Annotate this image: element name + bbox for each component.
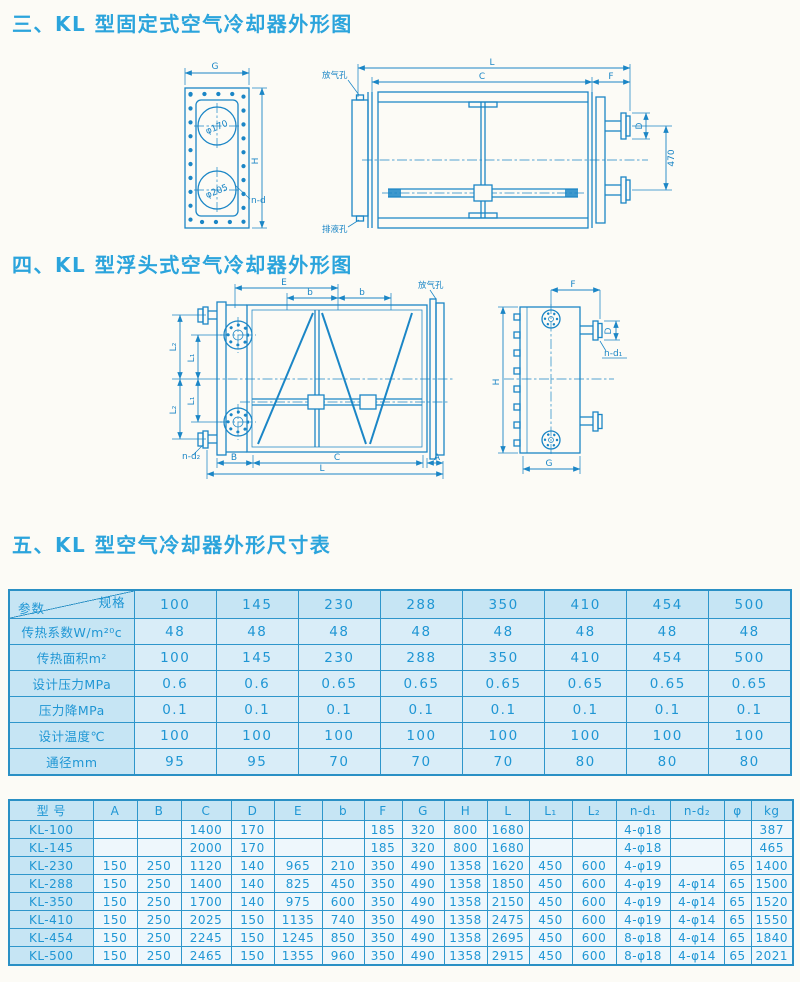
spec-column-header: 410 — [545, 590, 627, 619]
dimension-column-header: b — [322, 800, 364, 821]
dimension-value: 1358 — [444, 875, 487, 893]
floating-type-drawing: n-d₂ E b b 放气孔 L₂ L₁ L₁ — [0, 278, 800, 518]
dimension-value: 1400 — [181, 821, 231, 839]
dimension-value: 8-φ18 — [616, 929, 670, 947]
corner-spec-label: 规格 — [99, 592, 126, 611]
parameter-value: 288 — [380, 645, 462, 671]
dim-label-nd1: n-d₁ — [604, 349, 623, 359]
dimension-column-header: E — [274, 800, 322, 821]
dimension-value: 2021 — [751, 947, 793, 966]
dimension-value: 1135 — [274, 911, 322, 929]
section4-title: 四、KL 型浮头式空气冷却器外形图 — [12, 249, 353, 278]
parameter-row: 通径mm9595707070808080 — [9, 749, 791, 776]
dimension-column-header: kg — [751, 800, 793, 821]
dimension-value: 600 — [322, 893, 364, 911]
dimension-value: 150 — [93, 947, 137, 966]
dimension-value: 350 — [364, 929, 402, 947]
spec-column-header: 100 — [134, 590, 216, 619]
drain-nozzle — [357, 216, 364, 221]
parameter-value: 0.1 — [134, 697, 216, 723]
parameter-value: 95 — [216, 749, 298, 776]
dimension-value: 1245 — [274, 929, 322, 947]
model-row: KL-145200017018532080016804-φ18465 — [9, 839, 793, 857]
model-name: KL-500 — [9, 947, 93, 966]
dimension-value: 250 — [137, 857, 181, 875]
dimension-value: 4-φ14 — [670, 893, 724, 911]
tie-rod-thread-left — [388, 189, 401, 197]
parameter-value: 0.65 — [380, 671, 462, 697]
side-top-nozzle-flange — [593, 321, 598, 340]
parameter-value: 0.1 — [216, 697, 298, 723]
dimension-value: 450 — [529, 875, 572, 893]
dimension-value: 2245 — [181, 929, 231, 947]
parameter-value: 48 — [298, 619, 380, 645]
dimension-value: 1700 — [181, 893, 231, 911]
dimension-value: 210 — [322, 857, 364, 875]
parameter-value: 48 — [216, 619, 298, 645]
dimension-value: 1620 — [487, 857, 529, 875]
dimension-value: 4-φ19 — [616, 893, 670, 911]
parameter-label: 通径mm — [9, 749, 134, 776]
drain-label: 排液孔 — [322, 224, 348, 235]
parameter-value: 454 — [627, 645, 709, 671]
spec-column-header: 230 — [298, 590, 380, 619]
dimension-value — [529, 839, 572, 857]
corner-cell: 规格 参数 — [9, 590, 134, 619]
dim-label-f2: F — [570, 280, 575, 290]
parameter-value: 0.6 — [134, 671, 216, 697]
parameter-value: 0.1 — [545, 697, 627, 723]
parameter-value: 0.1 — [709, 697, 791, 723]
dimension-value: 2150 — [487, 893, 529, 911]
dimension-value: 1120 — [181, 857, 231, 875]
vent-label: 放气孔 — [322, 70, 348, 81]
parameter-value: 48 — [545, 619, 627, 645]
dimension-value: 250 — [137, 929, 181, 947]
dimension-value: 975 — [274, 893, 322, 911]
dimension-value: 800 — [444, 839, 487, 857]
dimension-value: 150 — [93, 911, 137, 929]
dimension-column-header: C — [181, 800, 231, 821]
dimension-value: 450 — [529, 947, 572, 966]
dimension-value: 600 — [572, 857, 616, 875]
parameter-value: 100 — [134, 645, 216, 671]
parameter-value: 145 — [216, 645, 298, 671]
dimension-column-header: H — [444, 800, 487, 821]
dimension-value: 65 — [724, 947, 751, 966]
model-name: KL-145 — [9, 839, 93, 857]
dimension-value — [724, 839, 751, 857]
dimension-value: 1358 — [444, 893, 487, 911]
dimension-value: 65 — [724, 893, 751, 911]
dimension-value: 1358 — [444, 857, 487, 875]
dimension-value: 4-φ19 — [616, 875, 670, 893]
dimension-value: 2695 — [487, 929, 529, 947]
spec-column-header: 350 — [463, 590, 545, 619]
dim-label-e: E — [281, 278, 287, 288]
dim-label-470: 470 — [667, 149, 677, 166]
dimension-value: 1840 — [751, 929, 793, 947]
dimension-value: 250 — [137, 947, 181, 966]
parameter-value: 80 — [545, 749, 627, 776]
dimension-value: 600 — [572, 929, 616, 947]
dimension-column-header: A — [93, 800, 137, 821]
spec-column-header: 145 — [216, 590, 298, 619]
tube-sheet — [217, 302, 226, 455]
dimension-value: 490 — [402, 893, 444, 911]
dimension-value: 600 — [572, 947, 616, 966]
dimension-value: 1400 — [181, 875, 231, 893]
dim-label-l1-top: L₁ — [187, 353, 197, 362]
top-left-nozzle-flange — [203, 307, 208, 324]
dimension-value: 185 — [364, 839, 402, 857]
parameter-label: 设计压力MPa — [9, 671, 134, 697]
floating-side-view: H F D n-d₁ G — [492, 280, 627, 474]
dim-label-c: C — [479, 72, 485, 82]
dim-label-h2: H — [492, 379, 502, 386]
dimension-value: 960 — [322, 947, 364, 966]
dimension-value: 170 — [231, 821, 274, 839]
parameter-label: 传热面积m² — [9, 645, 134, 671]
tie-rod-coupling — [474, 185, 492, 201]
dimension-column-header: G — [402, 800, 444, 821]
dimension-value: 1400 — [751, 857, 793, 875]
dimension-column-header: 型 号 — [9, 800, 93, 821]
dimension-value: 4-φ14 — [670, 947, 724, 966]
parameter-row: 传热系数W/m²⁰c4848484848484848 — [9, 619, 791, 645]
dimension-column-header: n-d₁ — [616, 800, 670, 821]
dimension-value: 450 — [529, 857, 572, 875]
parameter-label: 压力降MPa — [9, 697, 134, 723]
dimension-value: 1550 — [751, 911, 793, 929]
parameter-value: 70 — [463, 749, 545, 776]
dimension-value: 140 — [231, 857, 274, 875]
parameter-value: 70 — [380, 749, 462, 776]
parameter-value: 80 — [709, 749, 791, 776]
dimension-value: 800 — [444, 821, 487, 839]
dim-label-l2-bottom: L₂ — [169, 405, 179, 414]
dimension-value: 250 — [137, 875, 181, 893]
dimension-value — [322, 821, 364, 839]
dimension-value — [670, 839, 724, 857]
side-bottom-nozzle-flange — [593, 412, 598, 431]
dimension-value: 2915 — [487, 947, 529, 966]
dimension-column-header: F — [364, 800, 402, 821]
dimension-value: 185 — [364, 821, 402, 839]
parameter-value: 500 — [709, 645, 791, 671]
dimension-value: 350 — [364, 857, 402, 875]
parameter-value: 0.65 — [545, 671, 627, 697]
parameter-value: 0.1 — [380, 697, 462, 723]
dimension-value: 140 — [231, 893, 274, 911]
dimension-value: 450 — [529, 893, 572, 911]
dimension-value — [93, 821, 137, 839]
dim-label-nd2: n-d₂ — [182, 452, 201, 462]
dimension-value: 1358 — [444, 911, 487, 929]
parameter-value: 0.1 — [463, 697, 545, 723]
dim-label-l2-top: L₂ — [169, 342, 179, 351]
dimension-value: 490 — [402, 929, 444, 947]
dimension-value: 4-φ18 — [616, 839, 670, 857]
dimension-value: 850 — [322, 929, 364, 947]
dimension-value — [93, 839, 137, 857]
dimension-value: 150 — [231, 911, 274, 929]
fixed-end-view: φ170 φ205 G H n-d — [185, 62, 267, 228]
model-row: KL-100140017018532080016804-φ18387 — [9, 821, 793, 839]
dimension-value: 740 — [322, 911, 364, 929]
dimension-value — [322, 839, 364, 857]
dimension-value: 965 — [274, 857, 322, 875]
dimension-value: 450 — [529, 911, 572, 929]
header-box — [352, 100, 368, 216]
vent-nozzle — [357, 95, 364, 100]
truss-frame — [247, 305, 427, 452]
top-nozzle-flange — [621, 113, 626, 139]
dimension-value: 320 — [402, 821, 444, 839]
dimension-column-header: φ — [724, 800, 751, 821]
dimension-value: 4-φ14 — [670, 875, 724, 893]
dimension-column-header: L — [487, 800, 529, 821]
parameter-value: 100 — [134, 723, 216, 749]
dimension-value: 1520 — [751, 893, 793, 911]
dimension-value — [137, 839, 181, 857]
parameter-value: 100 — [216, 723, 298, 749]
model-name: KL-410 — [9, 911, 93, 929]
tie-rod-thread-right — [565, 189, 578, 197]
model-name: KL-454 — [9, 929, 93, 947]
fixed-side-view: L C F 放气孔 排液孔 — [322, 58, 677, 235]
dimension-value: 600 — [572, 875, 616, 893]
model-row: KL-2301502501120140965210350490135816204… — [9, 857, 793, 875]
spec-header-row: 规格 参数 100145230288350410454500 — [9, 590, 791, 619]
dimension-value: 4-φ18 — [616, 821, 670, 839]
dimension-value: 1680 — [487, 839, 529, 857]
dimension-value: 170 — [231, 839, 274, 857]
dimension-value: 490 — [402, 857, 444, 875]
dimension-value: 465 — [751, 839, 793, 857]
dimension-value: 825 — [274, 875, 322, 893]
bottom-left-nozzle-flange — [203, 431, 208, 448]
dim-label-l1-bottom: L₁ — [187, 396, 197, 405]
dimension-column-header: L₂ — [572, 800, 616, 821]
dimension-value: 150 — [93, 893, 137, 911]
parameter-label: 设计温度℃ — [9, 723, 134, 749]
dim-label-l-total: L — [319, 464, 324, 474]
dimension-value: 600 — [572, 911, 616, 929]
dimension-value: 350 — [364, 893, 402, 911]
dimension-value: 250 — [137, 893, 181, 911]
vent-label: 放气孔 — [418, 280, 444, 291]
spec-column-header: 288 — [380, 590, 462, 619]
model-name: KL-350 — [9, 893, 93, 911]
dimension-column-header: D — [231, 800, 274, 821]
parameter-value: 70 — [298, 749, 380, 776]
dim-label-d2: D — [604, 327, 614, 334]
spec-column-header: 454 — [627, 590, 709, 619]
dimension-value: 1500 — [751, 875, 793, 893]
parameter-value: 100 — [709, 723, 791, 749]
dimension-value: 387 — [751, 821, 793, 839]
model-row: KL-3501502501700140975600350490135821504… — [9, 893, 793, 911]
model-name: KL-100 — [9, 821, 93, 839]
dim-label-l: L — [489, 58, 494, 68]
dimension-value — [572, 839, 616, 857]
dimension-value: 2465 — [181, 947, 231, 966]
corner-param-label: 参数 — [18, 598, 45, 617]
parameter-value: 48 — [134, 619, 216, 645]
dimension-value — [274, 839, 322, 857]
dimension-value: 150 — [231, 929, 274, 947]
dimension-value: 1358 — [444, 947, 487, 966]
dimension-value — [529, 821, 572, 839]
dimension-value: 150 — [93, 929, 137, 947]
parameter-value: 100 — [380, 723, 462, 749]
dimension-value — [572, 821, 616, 839]
catalog-page: 三、KL 型固定式空气冷却器外形图 φ170 φ205 G — [0, 0, 800, 982]
parameter-value: 48 — [380, 619, 462, 645]
dimension-column-header: B — [137, 800, 181, 821]
dimension-value: 150 — [231, 947, 274, 966]
parameter-row: 设计压力MPa0.60.60.650.650.650.650.650.65 — [9, 671, 791, 697]
dim-label-a: A — [434, 453, 441, 463]
model-row: KL-5001502502465150135596035049013582915… — [9, 947, 793, 966]
dimension-table: 型 号ABCDEbFGHLL₁L₂n-d₁n-d₂φkg KL-10014001… — [8, 799, 794, 966]
parameter-value: 80 — [627, 749, 709, 776]
dimension-value — [274, 821, 322, 839]
section3-title: 三、KL 型固定式空气冷却器外形图 — [12, 8, 353, 37]
dim-label-b1: b — [307, 288, 313, 298]
dim-label-f: F — [608, 72, 613, 82]
dimension-value: 450 — [322, 875, 364, 893]
parameter-value: 0.1 — [627, 697, 709, 723]
fixed-type-drawing: φ170 φ205 G H n-d L C F — [0, 55, 800, 247]
dimension-value: 320 — [402, 839, 444, 857]
dimension-value: 65 — [724, 875, 751, 893]
parameter-value: 100 — [463, 723, 545, 749]
dimension-value: 350 — [364, 947, 402, 966]
dimension-value: 65 — [724, 857, 751, 875]
parameter-value: 48 — [463, 619, 545, 645]
parameter-value: 0.6 — [216, 671, 298, 697]
parameter-value: 0.65 — [627, 671, 709, 697]
dim-label-g2: G — [546, 459, 553, 469]
dimension-value: 350 — [364, 875, 402, 893]
dim-label-h: H — [251, 158, 261, 165]
dimension-value: 490 — [402, 911, 444, 929]
parameter-value: 100 — [545, 723, 627, 749]
parameter-value: 410 — [545, 645, 627, 671]
parameter-value: 0.65 — [463, 671, 545, 697]
spec-column-header: 500 — [709, 590, 791, 619]
parameter-value: 100 — [627, 723, 709, 749]
parameter-row: 设计温度℃100100100100100100100100 — [9, 723, 791, 749]
dimension-value: 150 — [93, 857, 137, 875]
dimension-value: 65 — [724, 911, 751, 929]
dimension-value: 4-φ14 — [670, 929, 724, 947]
parameter-value: 48 — [627, 619, 709, 645]
dimension-value: 450 — [529, 929, 572, 947]
bottom-nozzle-flange — [621, 177, 626, 203]
dim-label-g: G — [212, 62, 219, 72]
dim-label-b2: b — [359, 288, 365, 298]
parameter-value: 100 — [298, 723, 380, 749]
parameter-value: 0.65 — [709, 671, 791, 697]
dimension-value: 8-φ18 — [616, 947, 670, 966]
dimension-value: 2000 — [181, 839, 231, 857]
dimension-value: 140 — [231, 875, 274, 893]
parameter-value: 48 — [709, 619, 791, 645]
dimension-value: 490 — [402, 947, 444, 966]
section5-title: 五、KL 型空气冷却器外形尺寸表 — [12, 529, 331, 558]
parameter-value: 350 — [463, 645, 545, 671]
dim-label-nd: n-d — [251, 196, 266, 206]
dimension-value: 490 — [402, 875, 444, 893]
model-name: KL-230 — [9, 857, 93, 875]
model-row: KL-4541502502245150124585035049013582695… — [9, 929, 793, 947]
parameter-label: 传热系数W/m²⁰c — [9, 619, 134, 645]
model-row: KL-2881502501400140825450350490135818504… — [9, 875, 793, 893]
dimension-column-header: n-d₂ — [670, 800, 724, 821]
dimension-value: 2475 — [487, 911, 529, 929]
dimension-value: 4-φ19 — [616, 911, 670, 929]
dimension-header-row: 型 号ABCDEbFGHLL₁L₂n-d₁n-d₂φkg — [9, 800, 793, 821]
dimension-value — [670, 857, 724, 875]
dimension-value: 65 — [724, 929, 751, 947]
dimension-value: 2025 — [181, 911, 231, 929]
dimension-value: 4-φ19 — [616, 857, 670, 875]
dimension-value: 250 — [137, 911, 181, 929]
parameter-value: 230 — [298, 645, 380, 671]
dimension-value: 4-φ14 — [670, 911, 724, 929]
parameter-value: 0.1 — [298, 697, 380, 723]
dimension-value: 1850 — [487, 875, 529, 893]
performance-table: 规格 参数 100145230288350410454500 传热系数W/m²⁰… — [8, 589, 792, 776]
model-row: KL-4101502502025150113574035049013582475… — [9, 911, 793, 929]
parameter-value: 0.65 — [298, 671, 380, 697]
dimension-column-header: L₁ — [529, 800, 572, 821]
floating-main-view: n-d₂ E b b 放气孔 L₂ L₁ L₁ — [169, 278, 455, 479]
dimension-value: 1680 — [487, 821, 529, 839]
parameter-value: 95 — [134, 749, 216, 776]
dimension-value — [724, 821, 751, 839]
dimension-value: 350 — [364, 911, 402, 929]
parameter-row: 压力降MPa0.10.10.10.10.10.10.10.1 — [9, 697, 791, 723]
dimension-value — [670, 821, 724, 839]
model-name: KL-288 — [9, 875, 93, 893]
dimension-value: 1358 — [444, 929, 487, 947]
dim-label-c2: C — [334, 453, 340, 463]
dimension-value: 1355 — [274, 947, 322, 966]
dimension-value — [137, 821, 181, 839]
parameter-row: 传热面积m²100145230288350410454500 — [9, 645, 791, 671]
dimension-value: 150 — [93, 875, 137, 893]
dimension-value: 600 — [572, 893, 616, 911]
dim-label-bb: B — [231, 453, 237, 463]
